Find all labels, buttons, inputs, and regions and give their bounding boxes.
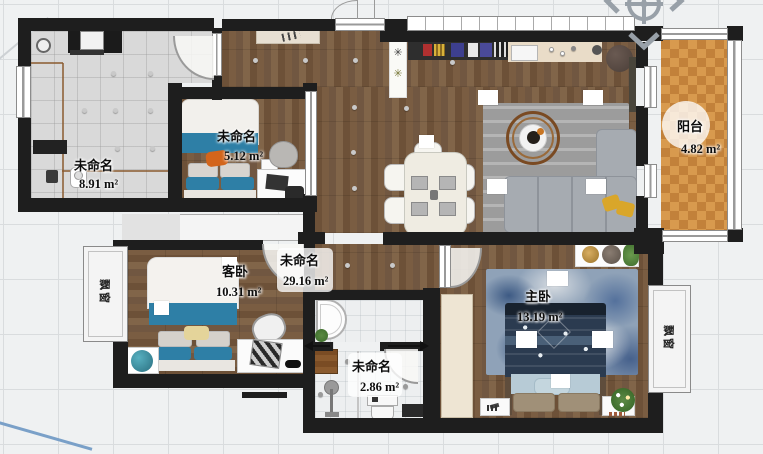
room-label-wc[interactable]: 未命名 bbox=[352, 356, 391, 375]
room-area-balcony: 4.82 m² bbox=[681, 142, 720, 157]
wall[interactable] bbox=[303, 194, 317, 212]
wall[interactable] bbox=[113, 240, 263, 250]
compass-north-icon[interactable] bbox=[592, 0, 696, 60]
wall[interactable] bbox=[383, 232, 655, 245]
ceiling-light bbox=[111, 71, 116, 76]
hood-bar bbox=[70, 50, 104, 55]
wall[interactable] bbox=[298, 232, 325, 244]
slide-arrow-line bbox=[388, 345, 420, 347]
ceiling-light bbox=[353, 58, 358, 63]
ceiling-light bbox=[82, 108, 87, 113]
handle bbox=[516, 331, 537, 348]
room-area-wc: 2.86 m² bbox=[360, 380, 399, 395]
window[interactable] bbox=[727, 40, 742, 230]
toilet-button bbox=[372, 397, 378, 402]
floor-lamp[interactable] bbox=[285, 360, 301, 368]
fan-icon: ✳ bbox=[390, 48, 406, 59]
counter-bowl bbox=[571, 46, 576, 51]
counter-item-blue2 bbox=[480, 43, 492, 57]
ceiling-light bbox=[390, 263, 395, 268]
wall[interactable] bbox=[18, 18, 214, 31]
counter-item-red bbox=[423, 44, 432, 56]
place-setting bbox=[411, 176, 428, 190]
handle bbox=[419, 135, 434, 148]
wall-stub[interactable] bbox=[242, 392, 287, 398]
handle bbox=[583, 90, 603, 105]
ceiling-light bbox=[150, 146, 155, 151]
floor-drain[interactable] bbox=[46, 170, 58, 183]
room-label-balcony[interactable]: 阳台 bbox=[677, 116, 703, 135]
place-setting bbox=[439, 202, 456, 216]
ceiling-light bbox=[148, 71, 153, 76]
dining-chair[interactable] bbox=[384, 164, 406, 191]
room-label-hall[interactable]: 未命名 bbox=[280, 250, 319, 269]
handle bbox=[551, 374, 570, 388]
handle bbox=[478, 90, 498, 105]
dining-chair[interactable] bbox=[384, 197, 406, 224]
ceiling-light bbox=[351, 150, 356, 155]
deco-column[interactable]: ✳ ✳ bbox=[389, 41, 407, 98]
wardrobe[interactable] bbox=[441, 294, 473, 418]
wall[interactable] bbox=[18, 18, 31, 68]
slide-arrow-right bbox=[420, 341, 429, 351]
handle bbox=[592, 331, 613, 348]
entry-door-leaf-line bbox=[374, 0, 375, 19]
small-bed-pillow bbox=[220, 163, 250, 178]
window[interactable] bbox=[644, 66, 657, 108]
armchair[interactable] bbox=[269, 141, 298, 168]
wall[interactable] bbox=[168, 83, 182, 200]
wall-art bbox=[249, 339, 282, 369]
wall-cabinet[interactable] bbox=[33, 140, 67, 154]
interior-window[interactable] bbox=[305, 91, 317, 196]
room-label-utility[interactable]: 未命名 bbox=[74, 155, 113, 174]
wall[interactable] bbox=[634, 228, 664, 254]
door-leaf[interactable] bbox=[439, 245, 451, 288]
window[interactable] bbox=[662, 230, 728, 242]
handle bbox=[487, 179, 507, 194]
stove[interactable] bbox=[80, 31, 104, 50]
bowl-stone bbox=[602, 245, 621, 264]
floor-dot bbox=[403, 384, 408, 389]
room-label-master[interactable]: 主卧 bbox=[525, 286, 551, 305]
wall[interactable] bbox=[648, 390, 663, 433]
laundry-basket bbox=[131, 350, 153, 372]
slide-arrow-left bbox=[304, 341, 313, 351]
room-area-utility: 8.91 m² bbox=[79, 177, 118, 192]
window[interactable] bbox=[16, 66, 31, 118]
blue-guide-line bbox=[0, 420, 92, 450]
ceiling-light bbox=[113, 108, 118, 113]
mop-stand-base bbox=[325, 412, 339, 417]
room-area-guest: 10.31 m² bbox=[216, 285, 261, 300]
small-bed-pillow-blue bbox=[221, 177, 254, 190]
ceiling-light bbox=[115, 146, 120, 151]
small-bed-pillow-blue bbox=[186, 177, 219, 190]
gas-meter-icon[interactable] bbox=[36, 38, 51, 53]
wall[interactable] bbox=[180, 87, 307, 99]
room-label-small-bedroom[interactable]: 未命名 bbox=[217, 126, 256, 145]
master-pillow bbox=[513, 393, 555, 412]
corner-marker bbox=[487, 405, 499, 411]
ceiling-light bbox=[352, 105, 357, 110]
room-label-guest[interactable]: 客卧 bbox=[222, 261, 248, 280]
wall[interactable] bbox=[423, 288, 440, 428]
wall[interactable] bbox=[222, 19, 337, 31]
ceiling-light bbox=[253, 58, 258, 63]
ceiling-light bbox=[148, 108, 153, 113]
wall[interactable] bbox=[636, 106, 648, 166]
wall[interactable] bbox=[727, 26, 743, 41]
guest-bed-sheet bbox=[151, 360, 235, 371]
counter-item-blue bbox=[451, 43, 464, 57]
counter-bowl bbox=[549, 47, 554, 52]
flower-plant[interactable] bbox=[611, 388, 635, 412]
coffee-table-fruit bbox=[537, 128, 544, 135]
yellow-pillow bbox=[184, 326, 209, 340]
table-centerpiece bbox=[430, 190, 438, 200]
floor-plan-canvas: ✳ ✳ bbox=[0, 0, 763, 454]
wall[interactable] bbox=[303, 418, 663, 433]
area-guide-v bbox=[62, 63, 64, 201]
ceiling-light bbox=[345, 263, 350, 268]
tv-console[interactable] bbox=[629, 57, 636, 112]
counter-item-white bbox=[468, 43, 478, 57]
corridor-floor[interactable] bbox=[315, 244, 451, 290]
room-area-master: 13.19 m² bbox=[517, 310, 562, 325]
window[interactable] bbox=[644, 164, 657, 198]
master-pillow bbox=[558, 393, 600, 412]
slide-arrow-line bbox=[312, 345, 330, 347]
entry-door-swing[interactable] bbox=[331, 0, 357, 19]
entry-door-threshold[interactable] bbox=[335, 18, 385, 31]
counter-item-striped bbox=[434, 44, 445, 56]
wood-cabinet[interactable] bbox=[311, 349, 338, 374]
ceiling-light bbox=[352, 186, 357, 191]
sink[interactable] bbox=[511, 45, 538, 61]
wall[interactable] bbox=[727, 228, 743, 242]
wall[interactable] bbox=[18, 198, 314, 212]
handle bbox=[547, 271, 568, 286]
ceiling-light bbox=[450, 60, 455, 65]
guest-pillow-blue bbox=[194, 347, 232, 360]
ceiling-light bbox=[303, 58, 308, 63]
room-area-hall: 29.16 m² bbox=[283, 274, 328, 289]
closet-band-left bbox=[122, 214, 180, 241]
dish-rack bbox=[494, 42, 508, 57]
area-guide-h1 bbox=[31, 62, 63, 64]
nightstand-deco-dots bbox=[609, 412, 625, 416]
floor-dot bbox=[318, 392, 323, 397]
ceiling-light bbox=[404, 106, 409, 111]
bay-window-right-label: 飘窗 bbox=[661, 325, 677, 351]
bowl-gold bbox=[582, 246, 599, 263]
handle bbox=[586, 179, 606, 194]
plant-icon: ✳ bbox=[390, 69, 406, 80]
place-setting bbox=[411, 202, 428, 216]
room-area-small-bedroom: 5.12 m² bbox=[224, 149, 263, 164]
entry-door-leaf-line bbox=[357, 0, 358, 19]
bay-window-left-label: 飘窗 bbox=[97, 279, 113, 305]
place-setting bbox=[439, 176, 456, 190]
wall[interactable] bbox=[303, 212, 315, 430]
wall[interactable] bbox=[636, 196, 648, 232]
plant-small bbox=[315, 329, 328, 342]
wall[interactable] bbox=[113, 374, 310, 388]
handle bbox=[154, 301, 169, 315]
counter-bowl bbox=[560, 51, 565, 56]
